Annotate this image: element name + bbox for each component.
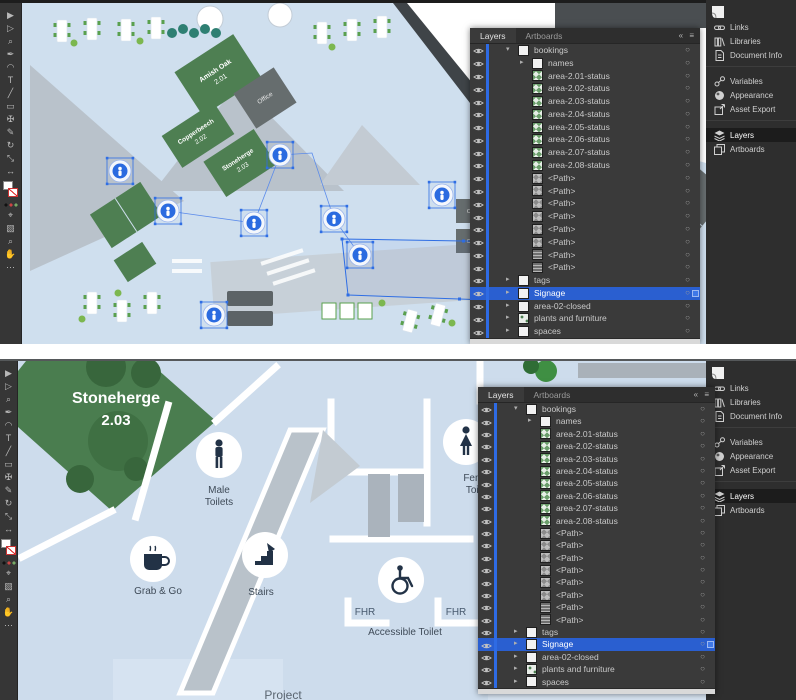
layer-name[interactable]: names bbox=[556, 415, 582, 427]
target-circle-icon[interactable]: ○ bbox=[685, 57, 690, 70]
layer-thumbnail[interactable] bbox=[518, 45, 529, 56]
type-tool-icon[interactable]: T bbox=[0, 74, 21, 87]
disclosure-collapsed-icon[interactable]: ▸ bbox=[514, 638, 518, 650]
line-tool-icon[interactable]: ╱ bbox=[0, 445, 17, 458]
layer-name[interactable]: <Path> bbox=[548, 210, 575, 223]
layer-name[interactable]: <Path> bbox=[556, 539, 583, 551]
target-circle-icon[interactable]: ○ bbox=[685, 44, 690, 57]
visibility-eye-icon[interactable] bbox=[481, 628, 492, 636]
layer-name[interactable]: area-2.03-status bbox=[548, 95, 610, 108]
disclosure-collapsed-icon[interactable]: ▸ bbox=[506, 300, 510, 313]
layer-row[interactable]: ▸names○ bbox=[478, 415, 715, 427]
disclosure-collapsed-icon[interactable]: ▸ bbox=[514, 651, 518, 663]
target-circle-icon[interactable]: ○ bbox=[700, 502, 705, 514]
scale-tool-icon[interactable]: ⤡ bbox=[0, 510, 17, 523]
layer-name[interactable]: <Path> bbox=[556, 564, 583, 576]
tab-artboards[interactable]: Artboards bbox=[524, 387, 581, 402]
layer-name[interactable]: <Path> bbox=[556, 576, 583, 588]
visibility-eye-icon[interactable] bbox=[473, 251, 484, 259]
disclosure-collapsed-icon[interactable]: ▸ bbox=[506, 312, 510, 325]
target-circle-icon[interactable]: ○ bbox=[700, 403, 705, 415]
target-circle-icon[interactable]: ○ bbox=[685, 70, 690, 83]
layer-thumbnail[interactable] bbox=[540, 466, 551, 477]
layer-row[interactable]: ▾bookings○ bbox=[478, 403, 715, 415]
visibility-eye-icon[interactable] bbox=[481, 665, 492, 673]
pencil-tool-icon[interactable]: ✎ bbox=[0, 484, 17, 497]
visibility-eye-icon[interactable] bbox=[473, 136, 484, 144]
visibility-eye-icon[interactable] bbox=[481, 603, 492, 611]
layer-row[interactable]: ▸names○ bbox=[470, 57, 700, 70]
layer-row[interactable]: ▸tags○ bbox=[478, 626, 715, 638]
visibility-eye-icon[interactable] bbox=[473, 187, 484, 195]
target-circle-icon[interactable]: ○ bbox=[700, 614, 705, 626]
visibility-eye-icon[interactable] bbox=[473, 264, 484, 272]
target-circle-icon[interactable]: ○ bbox=[685, 274, 690, 287]
hand-tool-icon[interactable]: ✋ bbox=[0, 248, 21, 261]
layer-name[interactable]: <Path> bbox=[548, 261, 575, 274]
target-circle-icon[interactable]: ○ bbox=[700, 676, 705, 688]
layer-row[interactable]: <Path>○ bbox=[478, 564, 715, 576]
paintbrush-tool-icon[interactable]: ✠ bbox=[0, 471, 17, 484]
target-circle-icon[interactable]: ○ bbox=[700, 552, 705, 564]
layer-thumbnail[interactable] bbox=[540, 602, 551, 613]
visibility-eye-icon[interactable] bbox=[481, 541, 492, 549]
layer-name[interactable]: tags bbox=[542, 626, 558, 638]
width-tool-icon[interactable]: ↔ bbox=[0, 523, 17, 536]
target-circle-icon[interactable]: ○ bbox=[700, 626, 705, 638]
target-circle-icon[interactable]: ○ bbox=[685, 261, 690, 274]
dock-item-appearance[interactable]: Appearance bbox=[706, 88, 796, 102]
visibility-eye-icon[interactable] bbox=[473, 276, 484, 284]
disclosure-collapsed-icon[interactable]: ▸ bbox=[506, 274, 510, 287]
layer-name[interactable]: area-2.05-status bbox=[556, 477, 618, 489]
layer-name[interactable]: area-2.02-status bbox=[548, 82, 610, 95]
visibility-eye-icon[interactable] bbox=[473, 59, 484, 67]
visibility-eye-icon[interactable] bbox=[473, 213, 484, 221]
visibility-eye-icon[interactable] bbox=[473, 149, 484, 157]
target-circle-icon[interactable]: ○ bbox=[685, 159, 690, 172]
layer-row[interactable]: <Path>○ bbox=[478, 601, 715, 613]
layer-row[interactable]: area-2.04-status○ bbox=[470, 108, 700, 121]
visibility-eye-icon[interactable] bbox=[473, 110, 484, 118]
visibility-eye-icon[interactable] bbox=[481, 554, 492, 562]
target-circle-icon[interactable]: ○ bbox=[700, 415, 705, 427]
layer-thumbnail[interactable] bbox=[540, 528, 551, 539]
disclosure-collapsed-icon[interactable]: ▸ bbox=[506, 325, 510, 338]
layer-row[interactable]: area-2.04-status○ bbox=[478, 465, 715, 477]
layer-row[interactable]: area-2.03-status○ bbox=[478, 453, 715, 465]
layer-thumbnail[interactable] bbox=[532, 237, 543, 248]
panel-menu-icon[interactable]: « ≡ bbox=[694, 387, 711, 403]
layer-thumbnail[interactable] bbox=[532, 249, 543, 260]
target-circle-icon[interactable]: ○ bbox=[700, 539, 705, 551]
visibility-eye-icon[interactable] bbox=[473, 46, 484, 54]
tools-panel[interactable]: ▶▷⌕✒◠T╱▭✠✎↻⤡↔⌖▧⌕✋⋯ bbox=[0, 361, 18, 700]
tab-layers[interactable]: Layers bbox=[478, 387, 524, 402]
target-circle-icon[interactable]: ○ bbox=[700, 428, 705, 440]
target-circle-icon[interactable]: ○ bbox=[685, 300, 690, 313]
layer-name[interactable]: area-2.05-status bbox=[548, 121, 610, 134]
target-circle-icon[interactable]: ○ bbox=[700, 515, 705, 527]
visibility-eye-icon[interactable] bbox=[481, 616, 492, 624]
dock-item-variables[interactable]: Variables bbox=[706, 74, 796, 88]
layer-thumbnail[interactable] bbox=[526, 639, 537, 650]
rectangle-tool-icon[interactable]: ▭ bbox=[0, 100, 21, 113]
disclosure-collapsed-icon[interactable]: ▸ bbox=[520, 57, 524, 70]
target-circle-icon[interactable]: ○ bbox=[685, 223, 690, 236]
layer-thumbnail[interactable] bbox=[540, 590, 551, 601]
layer-row[interactable]: area-2.02-status○ bbox=[478, 440, 715, 452]
layer-row-selected[interactable]: ▸Signage○ bbox=[470, 287, 700, 300]
layer-row[interactable]: <Path>○ bbox=[470, 236, 700, 249]
rotate-tool-icon[interactable]: ↻ bbox=[0, 139, 21, 152]
visibility-eye-icon[interactable] bbox=[481, 591, 492, 599]
dock-item-links[interactable]: Links bbox=[706, 20, 796, 34]
layer-name[interactable]: area-2.07-status bbox=[556, 502, 618, 514]
layer-row[interactable]: ▸spaces○ bbox=[478, 676, 715, 688]
disclosure-collapsed-icon[interactable]: ▸ bbox=[514, 626, 518, 638]
layer-thumbnail[interactable] bbox=[532, 198, 543, 209]
target-circle-icon[interactable]: ○ bbox=[685, 312, 690, 325]
page-curl-icon[interactable] bbox=[710, 4, 726, 20]
layer-name[interactable]: <Path> bbox=[556, 589, 583, 601]
layer-thumbnail[interactable] bbox=[532, 122, 543, 133]
layer-thumbnail[interactable] bbox=[532, 70, 543, 81]
layer-row[interactable]: <Path>○ bbox=[478, 552, 715, 564]
dock-item-libraries[interactable]: Libraries bbox=[706, 395, 796, 409]
layer-name[interactable]: <Path> bbox=[556, 527, 583, 539]
rectangle-tool-icon[interactable]: ▭ bbox=[0, 458, 17, 471]
visibility-eye-icon[interactable] bbox=[481, 480, 492, 488]
layer-name[interactable]: area-02-closed bbox=[534, 300, 591, 313]
visibility-eye-icon[interactable] bbox=[473, 72, 484, 80]
layer-thumbnail[interactable] bbox=[518, 301, 529, 312]
layer-row[interactable]: <Path>○ bbox=[470, 261, 700, 274]
layer-name[interactable]: area-2.08-status bbox=[556, 515, 618, 527]
visibility-eye-icon[interactable] bbox=[473, 302, 484, 310]
target-circle-icon[interactable]: ○ bbox=[700, 490, 705, 502]
target-circle-icon[interactable]: ○ bbox=[685, 121, 690, 134]
magic-wand-tool-icon[interactable]: ⌕ bbox=[0, 393, 17, 406]
visibility-eye-icon[interactable] bbox=[481, 455, 492, 463]
target-circle-icon[interactable]: ○ bbox=[685, 95, 690, 108]
layer-name[interactable]: area-2.01-status bbox=[548, 70, 610, 83]
layer-name[interactable]: <Path> bbox=[548, 236, 575, 249]
visibility-eye-icon[interactable] bbox=[473, 161, 484, 169]
layer-thumbnail[interactable] bbox=[518, 275, 529, 286]
layer-name[interactable]: <Path> bbox=[556, 614, 583, 626]
target-circle-icon[interactable]: ○ bbox=[685, 325, 690, 338]
layer-row[interactable]: ▸plants and furniture○ bbox=[478, 663, 715, 675]
target-circle-icon[interactable]: ○ bbox=[700, 477, 705, 489]
curvature-tool-icon[interactable]: ◠ bbox=[0, 419, 17, 432]
target-circle-icon[interactable]: ○ bbox=[700, 651, 705, 663]
dock-item-libraries[interactable]: Libraries bbox=[706, 34, 796, 48]
visibility-eye-icon[interactable] bbox=[473, 85, 484, 93]
dock-item-layers[interactable]: Layers bbox=[706, 128, 796, 142]
layer-thumbnail[interactable] bbox=[526, 664, 537, 675]
dock-item-artboards[interactable]: Artboards bbox=[706, 142, 796, 156]
target-circle-icon[interactable]: ○ bbox=[700, 576, 705, 588]
layer-row[interactable]: area-2.03-status○ bbox=[470, 95, 700, 108]
layer-name[interactable]: tags bbox=[534, 274, 550, 287]
layer-name[interactable]: area-2.01-status bbox=[556, 428, 618, 440]
visibility-eye-icon[interactable] bbox=[473, 200, 484, 208]
direct-selection-tool-icon[interactable]: ▷ bbox=[0, 380, 17, 393]
target-circle-icon[interactable]: ○ bbox=[685, 82, 690, 95]
pen-tool-icon[interactable]: ✒ bbox=[0, 48, 21, 61]
target-circle-icon[interactable]: ○ bbox=[700, 453, 705, 465]
target-circle-icon[interactable]: ○ bbox=[700, 663, 705, 675]
layer-name[interactable]: <Path> bbox=[556, 601, 583, 613]
layer-row[interactable]: area-2.07-status○ bbox=[478, 502, 715, 514]
layer-row[interactable]: area-2.01-status○ bbox=[470, 70, 700, 83]
visibility-eye-icon[interactable] bbox=[481, 504, 492, 512]
layer-name[interactable]: Signage bbox=[542, 638, 573, 650]
dock-item-document-info[interactable]: Document Info bbox=[706, 409, 796, 423]
layer-thumbnail[interactable] bbox=[526, 627, 537, 638]
visibility-eye-icon[interactable] bbox=[473, 123, 484, 131]
target-circle-icon[interactable]: ○ bbox=[685, 236, 690, 249]
layer-name[interactable]: bookings bbox=[542, 403, 576, 415]
target-circle-icon[interactable]: ○ bbox=[700, 440, 705, 452]
layer-thumbnail[interactable] bbox=[532, 83, 543, 94]
visibility-eye-icon[interactable] bbox=[481, 678, 492, 686]
target-circle-icon[interactable]: ○ bbox=[685, 197, 690, 210]
layer-row[interactable]: ▸plants and furniture○ bbox=[470, 312, 700, 325]
stroke-swatch[interactable] bbox=[8, 188, 18, 197]
hand-tool-icon[interactable]: ✋ bbox=[0, 606, 17, 619]
visibility-eye-icon[interactable] bbox=[481, 529, 492, 537]
dock-item-asset-export[interactable]: Asset Export bbox=[706, 463, 796, 477]
target-circle-icon[interactable]: ○ bbox=[685, 287, 690, 300]
dock-item-document-info[interactable]: Document Info bbox=[706, 48, 796, 62]
layer-thumbnail[interactable] bbox=[532, 58, 543, 69]
layer-row[interactable]: area-2.06-status○ bbox=[470, 133, 700, 146]
visibility-eye-icon[interactable] bbox=[481, 405, 492, 413]
layer-thumbnail[interactable] bbox=[532, 211, 543, 222]
layer-row[interactable]: <Path>○ bbox=[470, 197, 700, 210]
paintbrush-tool-icon[interactable]: ✠ bbox=[0, 113, 21, 126]
disclosure-collapsed-icon[interactable]: ▸ bbox=[514, 663, 518, 675]
dock-item-links[interactable]: Links bbox=[706, 381, 796, 395]
layer-name[interactable]: <Path> bbox=[548, 185, 575, 198]
layer-row[interactable]: <Path>○ bbox=[470, 223, 700, 236]
layer-name[interactable]: <Path> bbox=[548, 249, 575, 262]
tools-panel[interactable]: ▶▷⌕✒◠T╱▭✠✎↻⤡↔⌖▧⌕✋⋯ bbox=[0, 3, 22, 344]
panel-menu-icon[interactable]: « ≡ bbox=[679, 28, 696, 44]
layer-thumbnail[interactable] bbox=[540, 577, 551, 588]
layer-row[interactable]: <Path>○ bbox=[470, 210, 700, 223]
layer-thumbnail[interactable] bbox=[526, 404, 537, 415]
target-circle-icon[interactable]: ○ bbox=[700, 564, 705, 576]
pen-tool-icon[interactable]: ✒ bbox=[0, 406, 17, 419]
layer-name[interactable]: area-02-closed bbox=[542, 651, 599, 663]
fill-stroke-swatches[interactable] bbox=[1, 539, 17, 557]
fill-stroke-swatches[interactable] bbox=[3, 181, 19, 199]
visibility-eye-icon[interactable] bbox=[481, 517, 492, 525]
more-tools-icon[interactable]: ⋯ bbox=[0, 619, 17, 632]
layer-thumbnail[interactable] bbox=[540, 614, 551, 625]
layer-name[interactable]: area-2.03-status bbox=[556, 453, 618, 465]
gradient-tool-icon[interactable]: ▧ bbox=[0, 222, 21, 235]
layer-thumbnail[interactable] bbox=[518, 313, 529, 324]
more-tools-icon[interactable]: ⋯ bbox=[0, 261, 21, 274]
target-circle-icon[interactable]: ○ bbox=[700, 465, 705, 477]
layer-name[interactable]: <Path> bbox=[556, 552, 583, 564]
target-circle-icon[interactable]: ○ bbox=[700, 589, 705, 601]
layer-name[interactable]: bookings bbox=[534, 44, 568, 57]
visibility-eye-icon[interactable] bbox=[473, 225, 484, 233]
layer-name[interactable]: area-2.06-status bbox=[556, 490, 618, 502]
layer-row[interactable]: area-2.05-status○ bbox=[470, 121, 700, 134]
target-circle-icon[interactable]: ○ bbox=[685, 108, 690, 121]
layer-thumbnail[interactable] bbox=[526, 652, 537, 663]
layer-row[interactable]: <Path>○ bbox=[470, 249, 700, 262]
layer-thumbnail[interactable] bbox=[532, 96, 543, 107]
layer-thumbnail[interactable] bbox=[540, 416, 551, 427]
layer-thumbnail[interactable] bbox=[540, 453, 551, 464]
layer-name[interactable]: area-2.08-status bbox=[548, 159, 610, 172]
eyedropper-tool-icon[interactable]: ⌖ bbox=[0, 209, 21, 222]
layer-thumbnail[interactable] bbox=[532, 134, 543, 145]
direct-selection-tool-icon[interactable]: ▷ bbox=[0, 22, 21, 35]
layer-row[interactable]: <Path>○ bbox=[470, 185, 700, 198]
target-circle-icon[interactable]: ○ bbox=[685, 185, 690, 198]
gradient-tool-icon[interactable]: ▧ bbox=[0, 580, 17, 593]
layer-row[interactable]: <Path>○ bbox=[478, 614, 715, 626]
rotate-tool-icon[interactable]: ↻ bbox=[0, 497, 17, 510]
layer-row[interactable]: <Path>○ bbox=[478, 589, 715, 601]
layer-name[interactable]: area-2.04-status bbox=[556, 465, 618, 477]
layer-name[interactable]: <Path> bbox=[548, 197, 575, 210]
layer-name[interactable]: area-2.04-status bbox=[548, 108, 610, 121]
layer-name[interactable]: plants and furniture bbox=[534, 312, 607, 325]
visibility-eye-icon[interactable] bbox=[473, 238, 484, 246]
layer-thumbnail[interactable] bbox=[532, 109, 543, 120]
target-circle-icon[interactable]: ○ bbox=[700, 638, 705, 650]
target-circle-icon[interactable]: ○ bbox=[700, 601, 705, 613]
layer-thumbnail[interactable] bbox=[540, 565, 551, 576]
layer-row[interactable]: area-2.08-status○ bbox=[470, 159, 700, 172]
layer-thumbnail[interactable] bbox=[532, 185, 543, 196]
layer-name[interactable]: area-2.06-status bbox=[548, 133, 610, 146]
visibility-eye-icon[interactable] bbox=[473, 328, 484, 336]
visibility-eye-icon[interactable] bbox=[473, 315, 484, 323]
target-circle-icon[interactable]: ○ bbox=[685, 249, 690, 262]
disclosure-collapsed-icon[interactable]: ▸ bbox=[528, 415, 532, 427]
layer-row[interactable]: <Path>○ bbox=[478, 527, 715, 539]
layer-name[interactable]: spaces bbox=[534, 325, 561, 338]
layer-thumbnail[interactable] bbox=[532, 224, 543, 235]
layer-thumbnail[interactable] bbox=[518, 326, 529, 337]
layer-thumbnail[interactable] bbox=[540, 503, 551, 514]
target-circle-icon[interactable]: ○ bbox=[685, 210, 690, 223]
layer-row-selected[interactable]: ▸Signage○ bbox=[478, 638, 715, 650]
layer-row[interactable]: area-2.01-status○ bbox=[478, 428, 715, 440]
layer-thumbnail[interactable] bbox=[518, 288, 529, 299]
layer-row[interactable]: ▸tags○ bbox=[470, 274, 700, 287]
visibility-eye-icon[interactable] bbox=[481, 566, 492, 574]
layer-name[interactable]: area-2.02-status bbox=[556, 440, 618, 452]
visibility-eye-icon[interactable] bbox=[473, 174, 484, 182]
visibility-eye-icon[interactable] bbox=[481, 430, 492, 438]
layer-row[interactable]: ▾bookings○ bbox=[470, 44, 700, 57]
dock-item-layers[interactable]: Layers bbox=[706, 489, 796, 503]
curvature-tool-icon[interactable]: ◠ bbox=[0, 61, 21, 74]
pencil-tool-icon[interactable]: ✎ bbox=[0, 126, 21, 139]
layer-name[interactable]: <Path> bbox=[548, 172, 575, 185]
visibility-eye-icon[interactable] bbox=[481, 653, 492, 661]
stroke-swatch[interactable] bbox=[6, 546, 16, 555]
visibility-eye-icon[interactable] bbox=[473, 98, 484, 106]
layer-thumbnail[interactable] bbox=[540, 478, 551, 489]
dock-item-asset-export[interactable]: Asset Export bbox=[706, 102, 796, 116]
disclosure-collapsed-icon[interactable]: ▸ bbox=[514, 676, 518, 688]
layer-thumbnail[interactable] bbox=[532, 160, 543, 171]
disclosure-collapsed-icon[interactable]: ▸ bbox=[506, 287, 510, 300]
zoom-tool-icon[interactable]: ⌕ bbox=[0, 235, 21, 248]
layer-row[interactable]: <Path>○ bbox=[478, 539, 715, 551]
tab-layers[interactable]: Layers bbox=[470, 28, 516, 43]
layer-name[interactable]: plants and furniture bbox=[542, 663, 615, 675]
layer-name[interactable]: names bbox=[548, 57, 574, 70]
layer-thumbnail[interactable] bbox=[540, 515, 551, 526]
dock-item-artboards[interactable]: Artboards bbox=[706, 503, 796, 517]
layer-name[interactable]: area-2.07-status bbox=[548, 146, 610, 159]
layer-thumbnail[interactable] bbox=[540, 490, 551, 501]
visibility-eye-icon[interactable] bbox=[481, 579, 492, 587]
visibility-eye-icon[interactable] bbox=[481, 641, 492, 649]
layer-thumbnail[interactable] bbox=[526, 676, 537, 687]
layer-name[interactable]: spaces bbox=[542, 676, 569, 688]
layer-row[interactable]: area-2.07-status○ bbox=[470, 146, 700, 159]
layer-thumbnail[interactable] bbox=[540, 552, 551, 563]
line-tool-icon[interactable]: ╱ bbox=[0, 87, 21, 100]
width-tool-icon[interactable]: ↔ bbox=[0, 165, 21, 178]
visibility-eye-icon[interactable] bbox=[473, 289, 484, 297]
layer-row[interactable]: <Path>○ bbox=[470, 172, 700, 185]
zoom-tool-icon[interactable]: ⌕ bbox=[0, 593, 17, 606]
layer-name[interactable]: Signage bbox=[534, 287, 565, 300]
layer-thumbnail[interactable] bbox=[532, 262, 543, 273]
layer-row[interactable]: area-2.02-status○ bbox=[470, 82, 700, 95]
layer-row[interactable]: area-2.08-status○ bbox=[478, 515, 715, 527]
layer-row[interactable]: area-2.05-status○ bbox=[478, 477, 715, 489]
selection-tool-icon[interactable]: ▶ bbox=[0, 367, 17, 380]
target-circle-icon[interactable]: ○ bbox=[685, 146, 690, 159]
eyedropper-tool-icon[interactable]: ⌖ bbox=[0, 567, 17, 580]
layer-thumbnail[interactable] bbox=[540, 428, 551, 439]
layer-name[interactable]: <Path> bbox=[548, 223, 575, 236]
selection-tool-icon[interactable]: ▶ bbox=[0, 9, 21, 22]
visibility-eye-icon[interactable] bbox=[481, 467, 492, 475]
dock-item-variables[interactable]: Variables bbox=[706, 435, 796, 449]
type-tool-icon[interactable]: T bbox=[0, 432, 17, 445]
disclosure-expanded-icon[interactable]: ▾ bbox=[514, 403, 518, 415]
layer-thumbnail[interactable] bbox=[540, 441, 551, 452]
layer-row[interactable]: ▸area-02-closed○ bbox=[470, 300, 700, 313]
magic-wand-tool-icon[interactable]: ⌕ bbox=[0, 35, 21, 48]
layer-row[interactable]: ▸area-02-closed○ bbox=[478, 651, 715, 663]
layer-thumbnail[interactable] bbox=[540, 540, 551, 551]
target-circle-icon[interactable]: ○ bbox=[685, 172, 690, 185]
visibility-eye-icon[interactable] bbox=[481, 418, 492, 426]
layer-thumbnail[interactable] bbox=[532, 173, 543, 184]
tab-artboards[interactable]: Artboards bbox=[516, 28, 573, 43]
layer-row[interactable]: <Path>○ bbox=[478, 576, 715, 588]
disclosure-expanded-icon[interactable]: ▾ bbox=[506, 44, 510, 57]
